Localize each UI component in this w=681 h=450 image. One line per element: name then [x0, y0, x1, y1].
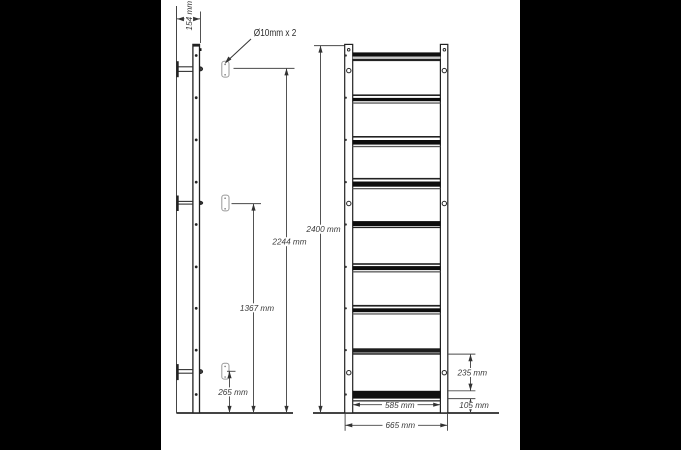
svg-text:235 mm: 235 mm [457, 369, 488, 378]
svg-text:2400 mm: 2400 mm [305, 225, 340, 234]
svg-text:105 mm: 105 mm [459, 401, 489, 410]
svg-text:1367 mm: 1367 mm [240, 304, 274, 313]
svg-text:Ø10mm x 2: Ø10mm x 2 [254, 28, 297, 39]
svg-text:585 mm: 585 mm [385, 401, 415, 410]
svg-text:154 mm: 154 mm [185, 1, 194, 31]
svg-text:265 mm: 265 mm [217, 388, 248, 397]
svg-text:2244 mm: 2244 mm [271, 238, 306, 247]
svg-text:665 mm: 665 mm [386, 421, 416, 430]
